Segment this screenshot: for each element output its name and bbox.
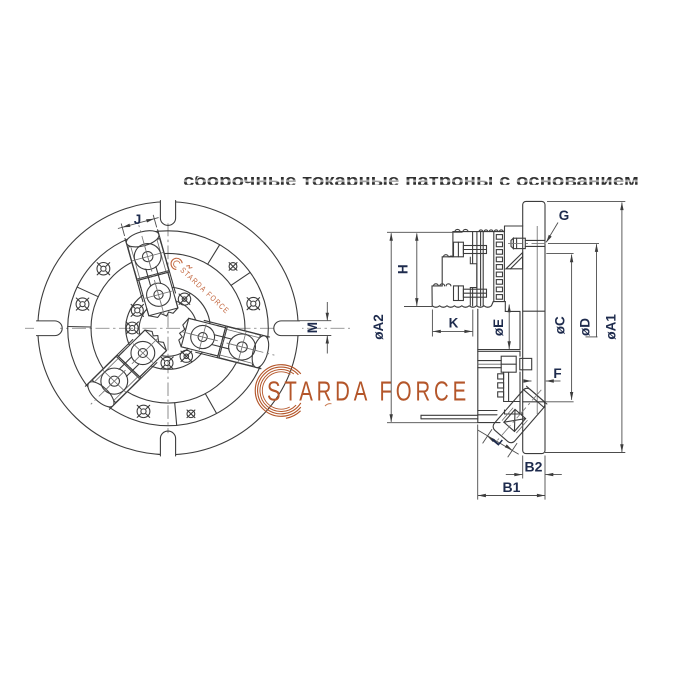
svg-text:K: K — [449, 315, 459, 330]
svg-text:øD: øD — [578, 318, 593, 336]
svg-text:H: H — [395, 264, 410, 274]
svg-text:B1: B1 — [503, 479, 521, 495]
svg-text:B2: B2 — [525, 458, 543, 474]
svg-text:F: F — [553, 366, 561, 381]
svg-text:G: G — [559, 208, 570, 223]
svg-text:øC: øC — [553, 316, 568, 334]
svg-text:STARDA FORCE: STARDA FORCE — [267, 376, 470, 407]
svg-text:øE: øE — [491, 319, 506, 336]
svg-text:øA1: øA1 — [604, 314, 619, 340]
svg-text:M: M — [305, 322, 320, 333]
svg-text:øA2: øA2 — [371, 314, 386, 340]
svg-text:J: J — [134, 212, 142, 227]
